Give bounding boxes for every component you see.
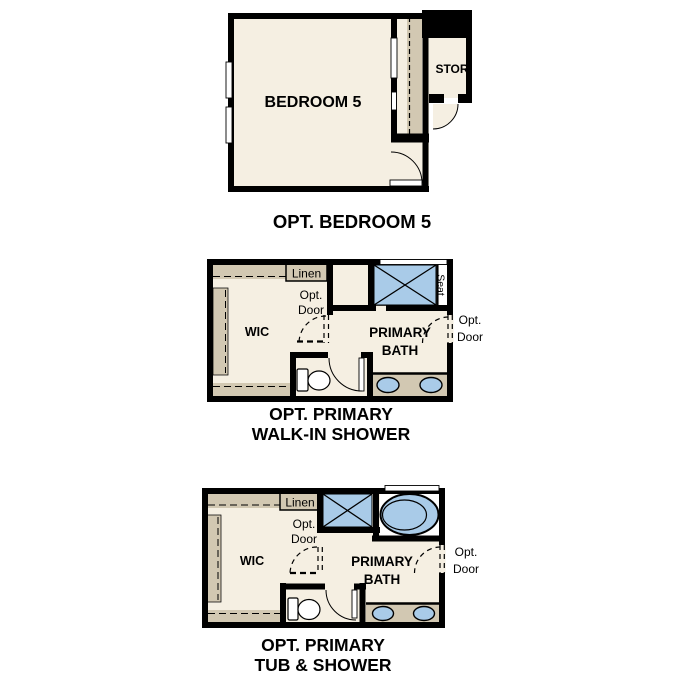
bedroom5-door-leaf: [390, 180, 422, 186]
plan-walkin-shower: Linen WIC Opt. Door PRIMARY BATH Seat Op…: [207, 259, 483, 444]
opt-door-entry-label-1: Opt.: [455, 545, 478, 559]
linen-label: Linen: [292, 267, 321, 281]
wall-opening: [392, 92, 397, 110]
seat-label: Seat: [435, 274, 447, 296]
sink-basin: [377, 378, 399, 393]
plan-tubshower-title-1: OPT. PRIMARY: [261, 635, 385, 655]
tub-window: [385, 486, 439, 492]
floorplan-page: BEDROOM 5 STOR OPT. BEDROOM 5: [0, 0, 687, 687]
plan-tubshower-title-2: TUB & SHOWER: [254, 655, 391, 675]
toilet-door-leaf: [352, 590, 357, 618]
sink-basin: [414, 607, 435, 621]
primary-bath-label-2: BATH: [364, 572, 401, 587]
floorplan-canvas: BEDROOM 5 STOR OPT. BEDROOM 5: [0, 0, 687, 687]
shower-entry-opening: [376, 306, 386, 312]
linen-label: Linen: [285, 496, 314, 510]
toilet-tank: [288, 598, 298, 620]
plan-bedroom5-title: OPT. BEDROOM 5: [273, 211, 431, 232]
wall-opening: [391, 38, 397, 78]
wic-label: WIC: [245, 325, 269, 339]
opt-door-wic-label-2: Door: [298, 303, 324, 317]
plan-bedroom5: BEDROOM 5 STOR OPT. BEDROOM 5: [226, 10, 472, 232]
wic-side-shelf: [207, 515, 221, 602]
primary-bath-label-2: BATH: [382, 343, 419, 358]
sink-basin: [373, 607, 394, 621]
opt-door-entry-label-2: Door: [453, 562, 479, 576]
toilet-tank: [297, 369, 308, 391]
opt-door-wic-label-1: Opt.: [293, 517, 316, 531]
storage-label: STOR: [435, 62, 468, 76]
primary-bath-label-1: PRIMARY: [369, 325, 431, 340]
opt-door-wic-label-2: Door: [291, 532, 317, 546]
toilet-bowl: [308, 371, 330, 390]
wic-bottom-shelf: [208, 610, 283, 623]
wic-top-shelf: [208, 494, 281, 508]
window: [226, 107, 232, 143]
primary-bath-label-1: PRIMARY: [351, 554, 413, 569]
plan-walkin-title-2: WALK-IN SHOWER: [252, 424, 411, 444]
opt-door-entry-label-2: Door: [457, 330, 483, 344]
bedroom5-label: BEDROOM 5: [265, 94, 362, 111]
plan-walkin-title-1: OPT. PRIMARY: [269, 404, 393, 424]
toilet-door-leaf: [359, 358, 364, 391]
opt-door-wic-label-1: Opt.: [300, 288, 323, 302]
sink-basin: [420, 378, 442, 393]
wic-bottom-shelf: [213, 383, 290, 396]
opt-door-entry-label-1: Opt.: [459, 313, 482, 327]
shower-glass-panel: [380, 260, 447, 265]
window: [226, 62, 232, 98]
toilet-bowl: [298, 600, 320, 620]
wic-label: WIC: [240, 554, 264, 568]
plan-tub-shower: Linen WIC Opt. Door PRIMARY BATH Opt. Do…: [202, 486, 479, 676]
